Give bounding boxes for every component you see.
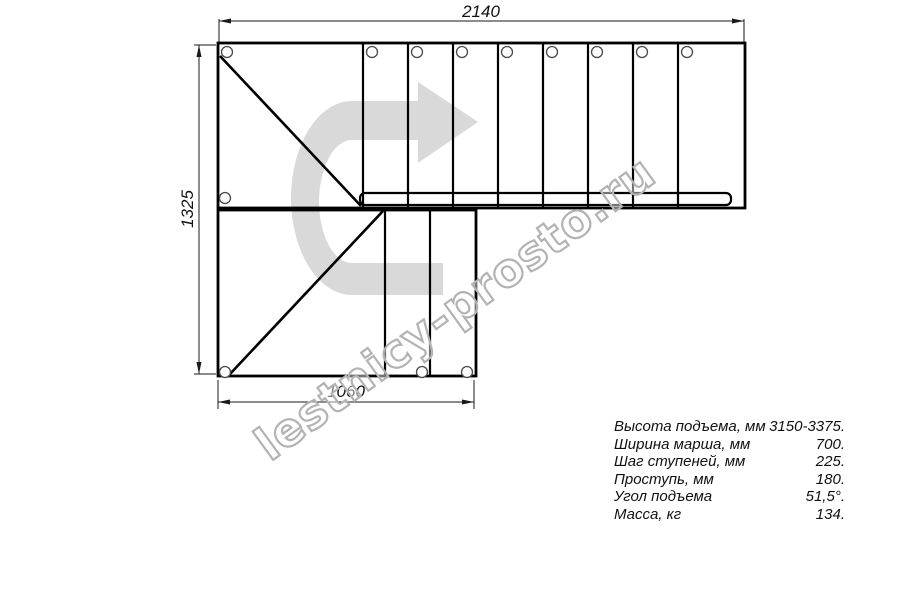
spec-row-mass: Масса, кг 134. — [614, 506, 845, 524]
dimension-lines — [194, 19, 744, 409]
dimension-top-value: 2140 — [431, 2, 531, 22]
spec-row-angle: Угол подъема 51,5°. — [614, 488, 845, 506]
dimension-bottom-value: 1060 — [296, 382, 396, 402]
spec-label: Масса, кг — [614, 506, 681, 524]
spec-value: 225. — [816, 453, 845, 471]
spec-label: Ширина марша, мм — [614, 436, 750, 454]
dimension-left-value: 1325 — [178, 159, 198, 259]
spec-value: 134. — [816, 506, 845, 524]
spec-table: Высота подъема, мм 3150-3375. Ширина мар… — [614, 418, 845, 523]
spec-value: 51,5°. — [806, 488, 845, 506]
staircase-plan-drawing: 2140 1325 1060 Высота подъема, мм 3150-3… — [0, 0, 900, 600]
spec-row-step: Шаг ступеней, мм 225. — [614, 453, 845, 471]
stringer-band — [360, 193, 731, 205]
spec-value: 3150-3375. — [769, 418, 845, 436]
dimension-arrowheads — [197, 19, 745, 405]
fixing-holes — [220, 47, 693, 378]
spec-label: Высота подъема, мм — [614, 418, 766, 436]
spec-value: 180. — [816, 471, 845, 489]
spec-value: 700. — [816, 436, 845, 454]
spec-label: Шаг ступеней, мм — [614, 453, 745, 471]
spec-row-width: Ширина марша, мм 700. — [614, 436, 845, 454]
spec-label: Угол подъема — [614, 488, 712, 506]
spec-row-tread: Проступь, мм 180. — [614, 471, 845, 489]
spec-row-height: Высота подъема, мм 3150-3375. — [614, 418, 845, 436]
stair-flights — [218, 43, 745, 376]
spec-label: Проступь, мм — [614, 471, 714, 489]
